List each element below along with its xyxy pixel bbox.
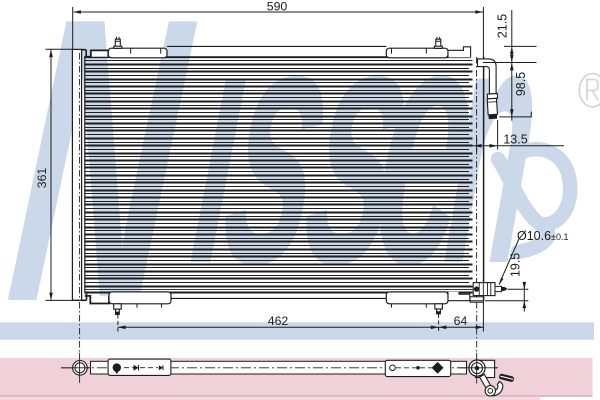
svg-text:Ø10.6±0.1: Ø10.6±0.1 bbox=[517, 229, 569, 243]
svg-text:13.5: 13.5 bbox=[503, 133, 527, 147]
svg-text:21.5: 21.5 bbox=[496, 14, 510, 38]
svg-text:98.5: 98.5 bbox=[514, 72, 528, 96]
svg-text:361: 361 bbox=[35, 168, 49, 189]
svg-text:19.5: 19.5 bbox=[508, 253, 522, 277]
svg-text:462: 462 bbox=[268, 314, 289, 328]
svg-text:590: 590 bbox=[267, 0, 288, 14]
svg-text:64: 64 bbox=[454, 314, 468, 328]
